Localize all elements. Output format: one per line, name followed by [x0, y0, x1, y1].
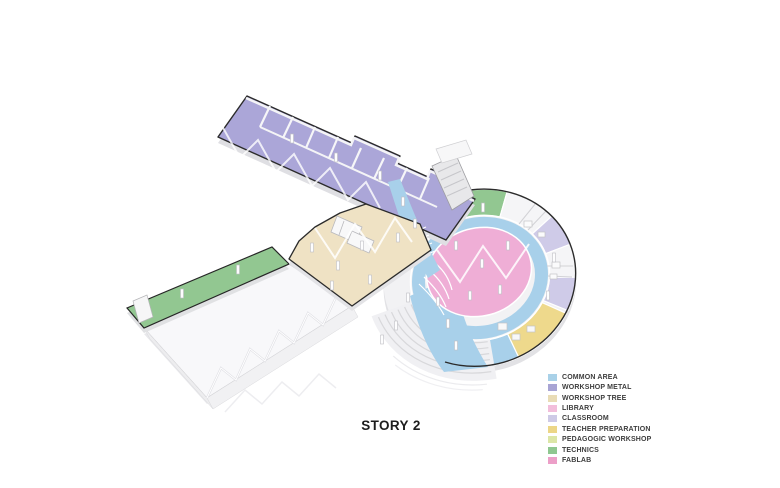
column — [381, 335, 384, 344]
legend-item-fablab: FABLAB — [548, 456, 651, 466]
legend-item-library: LIBRARY — [548, 403, 651, 413]
column — [455, 341, 458, 350]
column — [469, 291, 472, 300]
legend-item-pedagogic-workshop: PEDAGOGIC WORKSHOP — [548, 435, 651, 445]
column — [547, 291, 550, 300]
ring-furniture — [552, 262, 560, 268]
column — [311, 243, 314, 252]
column — [335, 153, 338, 162]
legend-swatch-classroom — [548, 415, 557, 422]
column — [337, 261, 340, 270]
legend-swatch-library — [548, 405, 557, 412]
column — [481, 259, 484, 268]
legend-item-technics: TECHNICS — [548, 445, 651, 455]
column — [499, 285, 502, 294]
legend-swatch-workshop-tree — [548, 395, 557, 402]
column — [379, 171, 382, 180]
page-title: STORY 2 — [336, 418, 446, 433]
legend-swatch-teacher-preparation — [548, 426, 557, 433]
column — [414, 219, 417, 228]
column — [437, 297, 440, 306]
legend-label: COMMON AREA — [562, 374, 618, 381]
legend-label: FABLAB — [562, 457, 591, 464]
legend-swatch-technics — [548, 447, 557, 454]
legend-item-classroom: CLASSROOM — [548, 414, 651, 424]
column — [507, 241, 510, 250]
legend-item-workshop-tree: WORKSHOP TREE — [548, 393, 651, 403]
legend-swatch-pedagogic-workshop — [548, 436, 557, 443]
column — [455, 241, 458, 250]
legend-label: WORKSHOP METAL — [562, 384, 632, 391]
ring-furniture — [524, 221, 532, 227]
column — [331, 281, 334, 290]
legend-label: PEDAGOGIC WORKSHOP — [562, 436, 651, 443]
legend-label: CLASSROOM — [562, 415, 609, 422]
column — [369, 275, 372, 284]
column — [291, 134, 294, 143]
teacher-prep-furniture — [512, 334, 520, 340]
legend-label: TECHNICS — [562, 447, 599, 454]
ring-furniture — [550, 274, 557, 279]
column — [553, 253, 556, 262]
column — [447, 319, 450, 328]
column — [482, 203, 485, 212]
teacher-prep-furniture — [527, 326, 535, 332]
legend-item-common-area: COMMON AREA — [548, 372, 651, 382]
legend: COMMON AREA WORKSHOP METAL WORKSHOP TREE… — [548, 372, 651, 466]
column — [181, 289, 184, 298]
legend-label: TEACHER PREPARATION — [562, 426, 651, 433]
column — [402, 197, 405, 206]
teacher-prep-furniture — [498, 323, 507, 330]
legend-label: LIBRARY — [562, 405, 594, 412]
legend-item-workshop-metal: WORKSHOP METAL — [548, 382, 651, 392]
legend-swatch-common-area — [548, 374, 557, 381]
column — [361, 241, 364, 250]
legend-swatch-fablab — [548, 457, 557, 464]
column — [395, 321, 398, 330]
legend-label: WORKSHOP TREE — [562, 395, 626, 402]
stair-canopy — [436, 140, 472, 163]
column — [407, 293, 410, 302]
floor-plan-drawing — [0, 0, 780, 488]
ring-furniture — [538, 232, 545, 237]
legend-swatch-workshop-metal — [548, 384, 557, 391]
legend-item-teacher-preparation: TEACHER PREPARATION — [548, 424, 651, 434]
column — [237, 265, 240, 274]
column — [397, 233, 400, 242]
